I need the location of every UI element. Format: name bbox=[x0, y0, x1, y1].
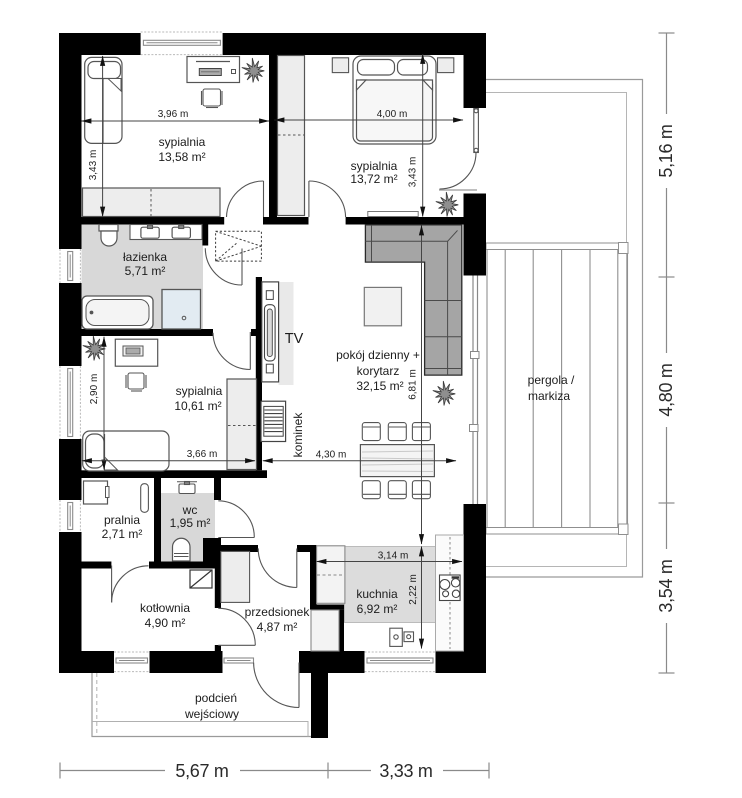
svg-text:markiza: markiza bbox=[528, 389, 570, 403]
svg-text:3,43 m: 3,43 m bbox=[408, 157, 419, 188]
svg-text:3,66 m: 3,66 m bbox=[187, 449, 218, 460]
svg-text:2,71 m²: 2,71 m² bbox=[102, 527, 143, 541]
svg-text:4,90 m²: 4,90 m² bbox=[145, 616, 186, 630]
svg-text:4,80 m: 4,80 m bbox=[656, 363, 676, 416]
svg-text:podcień: podcień bbox=[195, 691, 237, 705]
svg-text:3,96 m: 3,96 m bbox=[158, 109, 189, 120]
svg-text:3,54 m: 3,54 m bbox=[656, 559, 676, 612]
svg-text:kotłownia: kotłownia bbox=[140, 601, 190, 615]
svg-text:13,58 m²: 13,58 m² bbox=[158, 150, 205, 164]
svg-text:1,95 m²: 1,95 m² bbox=[170, 516, 211, 530]
svg-text:łazienka: łazienka bbox=[123, 250, 167, 264]
svg-text:kuchnia: kuchnia bbox=[356, 587, 398, 601]
svg-text:4,30 m: 4,30 m bbox=[316, 450, 347, 461]
svg-text:6,81 m: 6,81 m bbox=[408, 369, 419, 400]
svg-text:kominek: kominek bbox=[291, 412, 305, 458]
svg-text:13,72 m²: 13,72 m² bbox=[350, 172, 397, 186]
svg-text:4,87 m²: 4,87 m² bbox=[257, 620, 298, 634]
svg-text:5,67 m: 5,67 m bbox=[175, 761, 228, 781]
svg-text:wc: wc bbox=[182, 503, 198, 517]
svg-text:5,16 m: 5,16 m bbox=[656, 124, 676, 177]
svg-text:TV: TV bbox=[285, 331, 304, 347]
svg-text:sypialnia: sypialnia bbox=[351, 159, 398, 173]
svg-text:pokój dzienny +: pokój dzienny + bbox=[336, 348, 420, 362]
svg-text:3,43 m: 3,43 m bbox=[88, 150, 99, 181]
svg-text:32,15 m²: 32,15 m² bbox=[356, 379, 403, 393]
svg-text:3,14 m: 3,14 m bbox=[378, 551, 409, 562]
svg-text:sypialnia: sypialnia bbox=[159, 135, 206, 149]
svg-text:sypialnia: sypialnia bbox=[176, 384, 223, 398]
svg-text:10,61 m²: 10,61 m² bbox=[174, 399, 221, 413]
svg-text:wejściowy: wejściowy bbox=[184, 707, 239, 721]
svg-text:6,92 m²: 6,92 m² bbox=[357, 602, 398, 616]
svg-text:przedsionek: przedsionek bbox=[245, 605, 311, 619]
svg-text:4,00 m: 4,00 m bbox=[377, 109, 408, 120]
svg-text:2,90 m: 2,90 m bbox=[89, 374, 100, 405]
svg-text:3,33 m: 3,33 m bbox=[379, 761, 432, 781]
svg-text:pralnia: pralnia bbox=[104, 513, 140, 527]
svg-text:korytarz: korytarz bbox=[357, 364, 400, 378]
svg-text:5,71 m²: 5,71 m² bbox=[125, 264, 166, 278]
svg-text:2,22 m: 2,22 m bbox=[408, 574, 419, 605]
svg-text:pergola /: pergola / bbox=[528, 373, 575, 387]
